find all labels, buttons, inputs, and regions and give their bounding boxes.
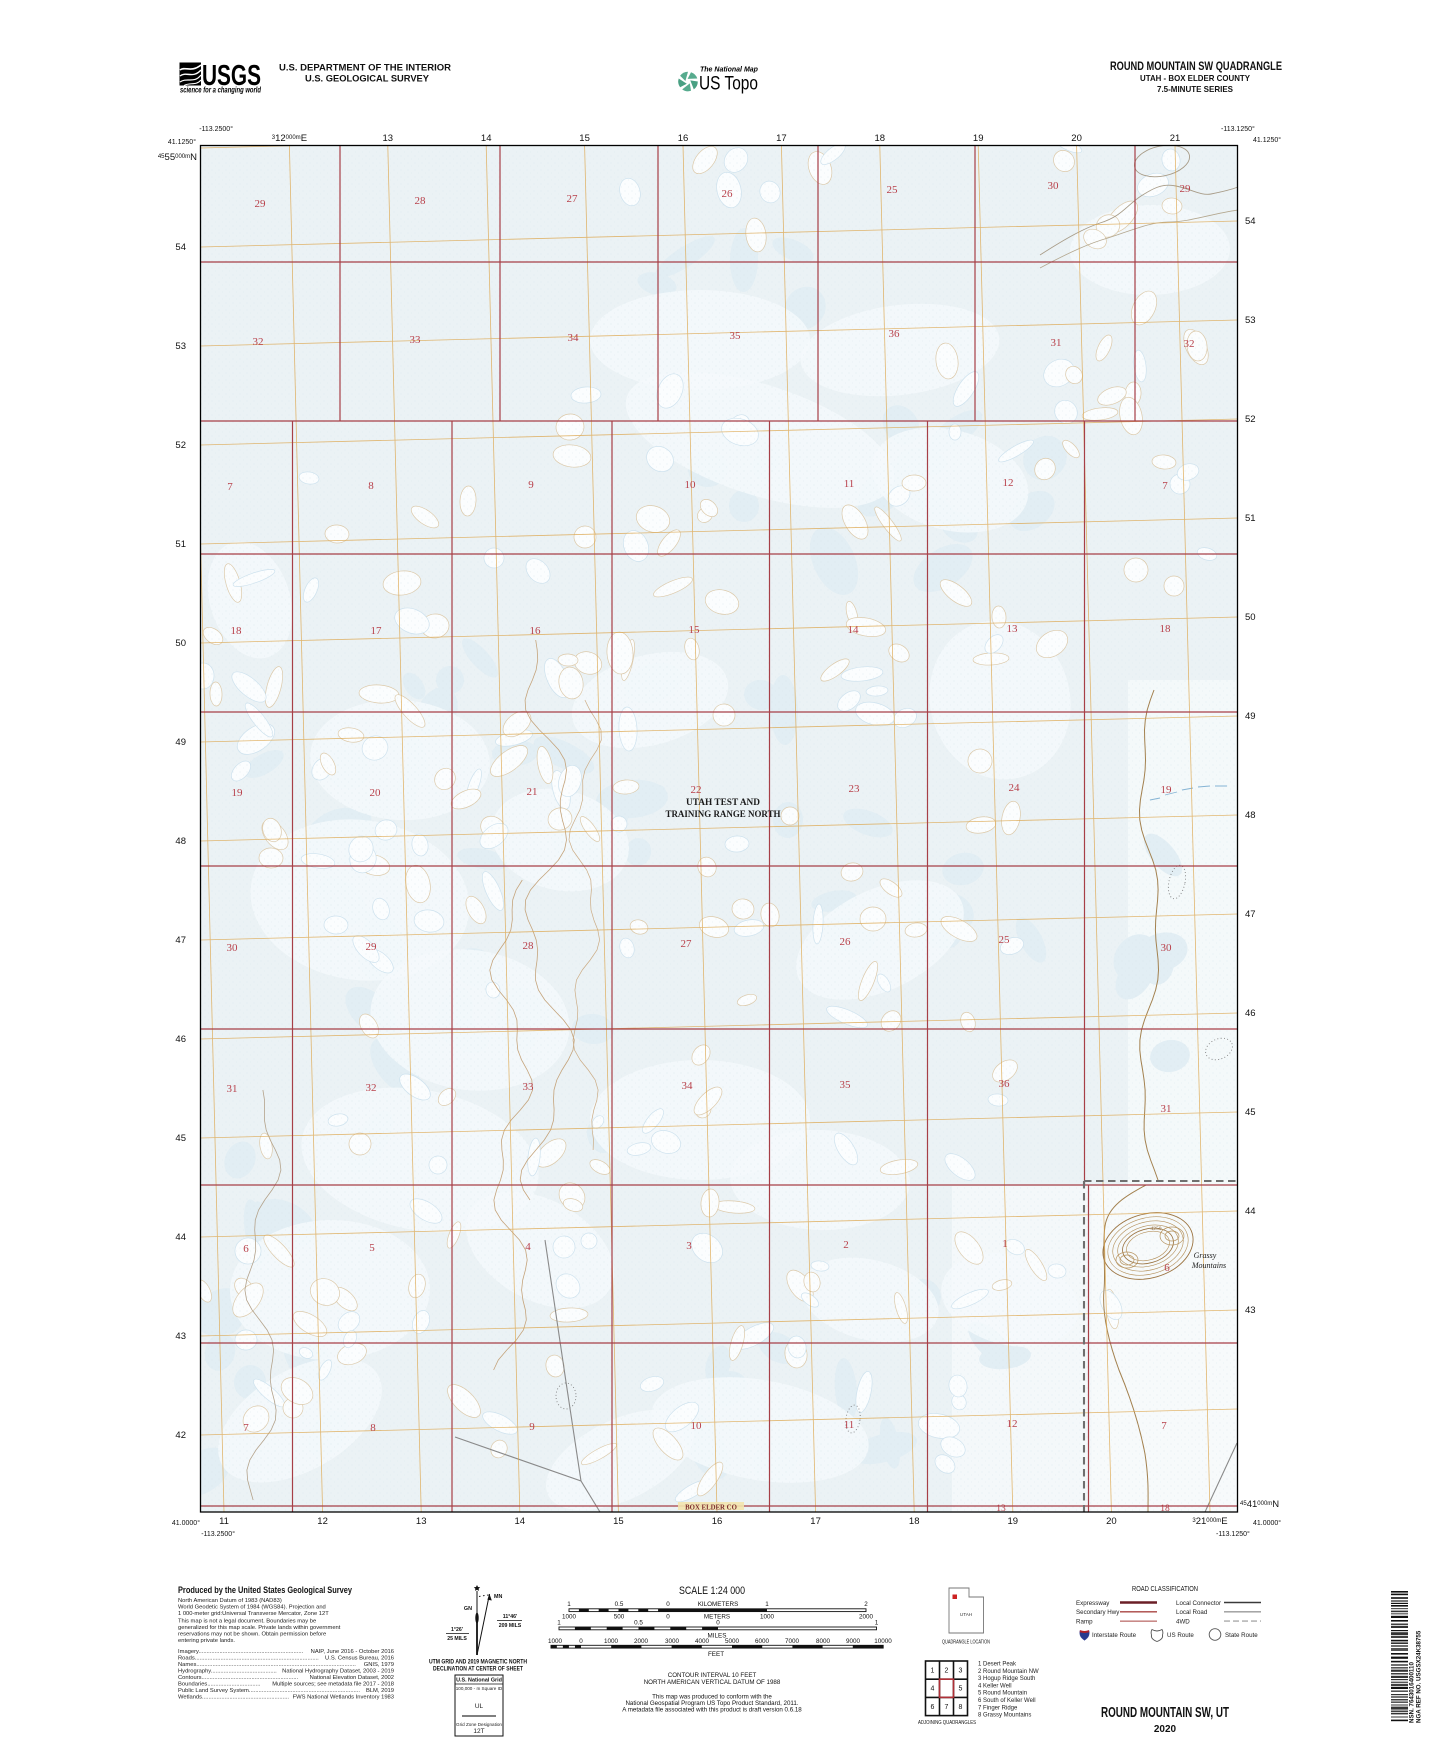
svg-text:24: 24 (1009, 782, 1021, 794)
svg-text:9: 9 (529, 1421, 535, 1433)
svg-text:25: 25 (999, 934, 1011, 946)
svg-text:1 Desert Peak: 1 Desert Peak (978, 1662, 1017, 1668)
svg-text:-113.1250°: -113.1250° (1216, 1530, 1250, 1538)
svg-text:31: 31 (1051, 337, 1062, 349)
svg-text:51: 51 (1245, 513, 1256, 524)
svg-text:5: 5 (959, 1686, 963, 1693)
svg-text:48: 48 (1245, 810, 1256, 821)
svg-text:4: 4 (525, 1241, 531, 1253)
svg-text:27: 27 (567, 193, 579, 205)
svg-text:34: 34 (568, 332, 580, 344)
svg-text:28: 28 (523, 940, 535, 952)
svg-text:44: 44 (1245, 1206, 1256, 1217)
svg-text:6: 6 (1164, 1262, 1170, 1274)
svg-text:UTAH TEST AND: UTAH TEST AND (686, 798, 760, 808)
svg-text:Boundaries....................: Boundaries..............................… (178, 1682, 261, 1688)
svg-text:Secondary Hwy: Secondary Hwy (1076, 1609, 1120, 1616)
svg-text:8 Grassy Mountains: 8 Grassy Mountains (978, 1713, 1031, 1719)
svg-text:1000: 1000 (760, 1614, 775, 1621)
svg-text:19: 19 (232, 787, 244, 799)
svg-text:3: 3 (959, 1668, 963, 1675)
svg-text:2: 2 (945, 1668, 949, 1675)
svg-text:U.S. GEOLOGICAL SURVEY: U.S. GEOLOGICAL SURVEY (305, 74, 430, 85)
svg-text:26: 26 (840, 936, 852, 948)
svg-text:29: 29 (255, 198, 267, 210)
svg-text:8: 8 (370, 1422, 376, 1434)
svg-text:41.1250°: 41.1250° (168, 138, 196, 146)
svg-text:13: 13 (416, 1516, 427, 1527)
svg-text:Multiple sources; see metadata: Multiple sources; see metadata file 2017… (272, 1682, 394, 1688)
svg-text:ROUND MOUNTAIN SW, UT: ROUND MOUNTAIN SW, UT (1101, 1705, 1229, 1721)
svg-text:53: 53 (175, 341, 186, 352)
svg-text:Contours......................: Contours................................… (178, 1675, 299, 1681)
svg-text:22: 22 (691, 784, 702, 796)
svg-text:UTM GRID AND 2019 MAGNETIC NOR: UTM GRID AND 2019 MAGNETIC NORTH (429, 1660, 527, 1666)
svg-text:7: 7 (227, 481, 233, 493)
svg-text:321000mE: 321000mE (1192, 1516, 1227, 1527)
svg-text:-113.2500°: -113.2500° (201, 1530, 235, 1538)
svg-text:entering private lands.: entering private lands. (178, 1638, 235, 1644)
svg-text:3: 3 (686, 1240, 692, 1252)
svg-text:46: 46 (175, 1034, 186, 1045)
svg-text:45: 45 (175, 1133, 186, 1144)
svg-text:14: 14 (481, 133, 492, 144)
svg-text:2020: 2020 (1154, 1724, 1177, 1735)
svg-text:30: 30 (227, 942, 239, 954)
svg-text:BLM, 2019: BLM, 2019 (366, 1688, 394, 1694)
svg-text:13: 13 (1007, 623, 1019, 635)
svg-text:43: 43 (175, 1331, 186, 1342)
svg-text:30: 30 (1048, 180, 1060, 192)
svg-text:U.S. National Grid: U.S. National Grid (456, 1678, 502, 1684)
svg-text:World Geodetic System of 1984: World Geodetic System of 1984 (WGS84). P… (178, 1605, 326, 1611)
svg-text:0: 0 (579, 1638, 583, 1645)
svg-text:ROAD CLASSIFICATION: ROAD CLASSIFICATION (1132, 1586, 1198, 1593)
svg-text:FEET: FEET (708, 1651, 724, 1658)
svg-text:science for a changing world: science for a changing world (180, 86, 261, 95)
svg-text:4 Keller Well: 4 Keller Well (978, 1683, 1012, 1689)
svg-text:209 MILS: 209 MILS (499, 1623, 522, 1629)
svg-text:1000: 1000 (604, 1638, 619, 1645)
svg-text:1 000-meter grid:Universal Tra: 1 000-meter grid:Universal Transverse Me… (178, 1611, 329, 1617)
svg-text:53: 53 (1245, 315, 1256, 326)
svg-text:4: 4 (931, 1686, 935, 1693)
svg-text:54: 54 (1245, 216, 1256, 227)
svg-text:35: 35 (840, 1079, 852, 1091)
svg-text:31: 31 (1161, 1103, 1172, 1115)
svg-text:36: 36 (999, 1078, 1011, 1090)
svg-text:5 Round Mountain: 5 Round Mountain (978, 1691, 1027, 1697)
svg-text:Wetlands......................: Wetlands................................… (178, 1695, 289, 1701)
svg-text:2: 2 (864, 1601, 868, 1608)
svg-text:0: 0 (716, 1619, 720, 1626)
svg-text:41.0000°: 41.0000° (1253, 1519, 1281, 1527)
svg-text:8: 8 (368, 480, 374, 492)
svg-text:Hydrography...................: Hydrography.............................… (178, 1669, 277, 1675)
svg-text:43: 43 (1245, 1305, 1256, 1316)
svg-text:14: 14 (848, 624, 860, 636)
svg-text:CONTOUR INTERVAL 10 FEET: CONTOUR INTERVAL 10 FEET (668, 1672, 757, 1679)
svg-text:Local Connector: Local Connector (1176, 1600, 1221, 1607)
svg-text:Names.........................: Names...................................… (178, 1662, 356, 1668)
svg-text:46: 46 (1245, 1008, 1256, 1019)
svg-text:16: 16 (530, 625, 542, 637)
svg-text:16: 16 (678, 133, 689, 144)
svg-text:26: 26 (722, 188, 734, 200)
svg-text:36: 36 (889, 328, 901, 340)
svg-text:7.5-MINUTE SERIES: 7.5-MINUTE SERIES (1157, 84, 1233, 94)
svg-text:19: 19 (1161, 784, 1173, 796)
svg-text:23: 23 (849, 783, 861, 795)
svg-text:A metadata file associated wit: A metadata file associated with this pro… (622, 1707, 802, 1714)
svg-text:ROUND MOUNTAIN SW QUADRANGLE: ROUND MOUNTAIN SW QUADRANGLE (1110, 59, 1282, 73)
svg-text:5: 5 (369, 1242, 375, 1254)
svg-text:DECLINATION AT CENTER OF SHEET: DECLINATION AT CENTER OF SHEET (433, 1667, 523, 1673)
svg-text:U.S. Census Bureau, 2016: U.S. Census Bureau, 2016 (325, 1656, 394, 1662)
svg-text:100,000 - m Square ID: 100,000 - m Square ID (456, 1686, 503, 1691)
svg-text:Produced by the United States: Produced by the United States Geological… (178, 1585, 353, 1595)
svg-text:State Route: State Route (1225, 1632, 1258, 1639)
svg-text:49: 49 (1245, 711, 1256, 722)
svg-text:2 Round Mountain NW: 2 Round Mountain NW (978, 1669, 1039, 1675)
svg-text:21: 21 (1170, 133, 1181, 144)
svg-text:QUADRANGLE LOCATION: QUADRANGLE LOCATION (942, 1640, 990, 1646)
svg-text:MILES: MILES (708, 1633, 727, 1640)
svg-text:20: 20 (370, 787, 382, 799)
svg-text:8000: 8000 (816, 1638, 831, 1645)
svg-text:32: 32 (1184, 338, 1195, 350)
svg-text:19: 19 (1008, 1516, 1019, 1527)
svg-text:UTAH: UTAH (960, 1612, 972, 1617)
svg-text:Ramp: Ramp (1076, 1618, 1093, 1625)
svg-text:4250: 4250 (1151, 1226, 1162, 1232)
svg-text:7 Finger Ridge: 7 Finger Ridge (978, 1705, 1018, 1711)
svg-text:33: 33 (523, 1081, 535, 1093)
svg-text:50: 50 (1245, 612, 1256, 623)
svg-text:UL: UL (475, 1703, 484, 1710)
svg-text:10000: 10000 (874, 1638, 892, 1645)
svg-text:41.1250°: 41.1250° (1253, 136, 1281, 144)
svg-text:UTAH - BOX ELDER COUNTY: UTAH - BOX ELDER COUNTY (1140, 73, 1250, 83)
svg-text:17: 17 (810, 1516, 821, 1527)
svg-text:44: 44 (175, 1232, 186, 1243)
svg-text:NGA REF NO. USGSX24K38755: NGA REF NO. USGSX24K38755 (1416, 1630, 1423, 1723)
svg-text:0: 0 (666, 1614, 670, 1621)
svg-text:32: 32 (253, 336, 264, 348)
svg-text:2000: 2000 (859, 1614, 874, 1621)
svg-text:7: 7 (1161, 1420, 1167, 1432)
svg-text:29: 29 (366, 941, 378, 953)
svg-text:34: 34 (682, 1080, 694, 1092)
svg-text:1: 1 (1002, 1238, 1008, 1250)
svg-text:1°26': 1°26' (451, 1627, 463, 1633)
svg-text:MN: MN (494, 1594, 502, 1600)
svg-text:BOX ELDER CO: BOX ELDER CO (685, 1505, 737, 1512)
svg-text:ADJOINING QUADRANGLES: ADJOINING QUADRANGLES (918, 1720, 977, 1726)
svg-text:500: 500 (614, 1614, 625, 1621)
svg-text:11°46': 11°46' (503, 1614, 518, 1620)
svg-text:National Hydrography Dataset,: National Hydrography Dataset, 2003 - 201… (282, 1669, 394, 1675)
svg-text:4WD: 4WD (1176, 1618, 1190, 1625)
svg-text:25: 25 (887, 184, 899, 196)
svg-text:14: 14 (515, 1516, 526, 1527)
svg-text:KILOMETERS: KILOMETERS (698, 1601, 739, 1608)
svg-text:Imagery.......................: Imagery.................................… (178, 1649, 304, 1655)
svg-text:12: 12 (317, 1516, 328, 1527)
svg-text:-113.1250°: -113.1250° (1221, 125, 1255, 133)
svg-text:FWS National Wetlands Inventor: FWS National Wetlands Inventory 1983 (293, 1695, 394, 1701)
svg-text:-113.2500°: -113.2500° (199, 125, 233, 133)
svg-text:5000: 5000 (725, 1638, 740, 1645)
svg-text:21: 21 (527, 786, 538, 798)
svg-text:47: 47 (1245, 909, 1256, 920)
svg-text:7000: 7000 (785, 1638, 800, 1645)
svg-text:6 South of Keller Well: 6 South of Keller Well (978, 1698, 1036, 1704)
svg-text:generalized for this map scale: generalized for this map scale. Private … (178, 1625, 341, 1631)
svg-text:GN: GN (464, 1606, 472, 1612)
svg-text:TRAINING RANGE NORTH: TRAINING RANGE NORTH (666, 810, 782, 820)
svg-text:12: 12 (1003, 477, 1014, 489)
svg-text:6: 6 (931, 1704, 935, 1711)
svg-text:9: 9 (528, 479, 534, 491)
svg-text:2000: 2000 (634, 1638, 649, 1645)
svg-text:2: 2 (843, 1239, 849, 1251)
svg-text:27: 27 (681, 938, 693, 950)
svg-text:1000: 1000 (548, 1638, 563, 1645)
svg-text:17: 17 (776, 133, 787, 144)
svg-text:20: 20 (1071, 133, 1082, 144)
svg-text:32: 32 (366, 1082, 377, 1094)
svg-text:19: 19 (973, 133, 984, 144)
svg-text:reservations may not be shown.: reservations may not be shown. Obtain pe… (178, 1632, 326, 1638)
svg-text:0: 0 (666, 1601, 670, 1608)
svg-text:48: 48 (175, 836, 186, 847)
svg-text:This map is not a legal docume: This map is not a legal document. Bounda… (178, 1619, 316, 1625)
svg-text:11: 11 (844, 1419, 855, 1431)
svg-text:49: 49 (175, 737, 186, 748)
svg-text:42: 42 (175, 1430, 186, 1441)
svg-text:12T: 12T (473, 1728, 484, 1735)
svg-text:1: 1 (875, 1619, 879, 1626)
svg-text:8: 8 (959, 1704, 963, 1711)
svg-text:US Topo: US Topo (699, 73, 758, 95)
svg-text:Roads.........................: Roads...................................… (178, 1656, 319, 1662)
svg-text:3000: 3000 (665, 1638, 680, 1645)
svg-text:0.5: 0.5 (634, 1619, 643, 1626)
svg-text:11: 11 (844, 478, 855, 490)
svg-text:Mountains: Mountains (1191, 1261, 1226, 1270)
svg-text:29: 29 (1180, 183, 1192, 195)
svg-text:35: 35 (730, 330, 742, 342)
svg-text:4541000mN: 4541000mN (1240, 1499, 1279, 1510)
svg-text:10: 10 (691, 1420, 703, 1432)
svg-text:7: 7 (1162, 480, 1168, 492)
svg-text:18: 18 (875, 133, 886, 144)
svg-text:6: 6 (243, 1243, 249, 1255)
svg-text:45: 45 (1245, 1107, 1256, 1118)
svg-text:18: 18 (1160, 623, 1172, 635)
svg-text:9000: 9000 (846, 1638, 861, 1645)
svg-text:25 MILS: 25 MILS (447, 1636, 467, 1642)
svg-text:13: 13 (383, 133, 394, 144)
svg-text:52: 52 (175, 440, 186, 451)
svg-text:7: 7 (945, 1704, 949, 1711)
svg-text:4555000mN: 4555000mN (158, 152, 197, 163)
svg-text:4000: 4000 (695, 1638, 710, 1645)
svg-text:NORTH AMERICAN VERTICAL DATUM: NORTH AMERICAN VERTICAL DATUM OF 1988 (644, 1679, 781, 1686)
svg-text:18: 18 (231, 625, 243, 637)
svg-text:28: 28 (415, 195, 427, 207)
svg-text:1: 1 (557, 1619, 561, 1626)
svg-text:Interstate Route: Interstate Route (1092, 1632, 1137, 1639)
svg-text:41.0000°: 41.0000° (172, 1519, 200, 1527)
svg-text:54: 54 (175, 242, 186, 253)
svg-text:31: 31 (227, 1083, 238, 1095)
svg-text:15: 15 (579, 133, 590, 144)
svg-text:16: 16 (712, 1516, 723, 1527)
svg-text:33: 33 (410, 334, 422, 346)
svg-text:US Route: US Route (1167, 1632, 1194, 1639)
svg-text:U.S. DEPARTMENT OF THE INTERIO: U.S. DEPARTMENT OF THE INTERIOR (279, 63, 451, 74)
svg-text:51: 51 (175, 539, 186, 550)
svg-text:30: 30 (1161, 942, 1173, 954)
svg-text:Grid Zone Designation: Grid Zone Designation (456, 1722, 502, 1727)
svg-text:1000: 1000 (562, 1614, 577, 1621)
svg-text:20: 20 (1106, 1516, 1117, 1527)
svg-text:312000mE: 312000mE (272, 133, 307, 144)
svg-text:12: 12 (1007, 1418, 1018, 1430)
svg-text:10: 10 (685, 479, 697, 491)
svg-text:1: 1 (765, 1601, 769, 1608)
svg-text:3 Hogup Ridge South: 3 Hogup Ridge South (978, 1676, 1035, 1682)
svg-text:GNIS, 1979: GNIS, 1979 (364, 1662, 394, 1668)
svg-text:7: 7 (243, 1422, 249, 1434)
svg-text:Grassy: Grassy (1194, 1251, 1217, 1260)
svg-text:0.5: 0.5 (615, 1601, 624, 1608)
svg-text:52: 52 (1245, 414, 1256, 425)
svg-text:SCALE 1:24 000: SCALE 1:24 000 (679, 1585, 745, 1597)
svg-text:North American Datum of 1983 (: North American Datum of 1983 (NAD83) (178, 1598, 282, 1604)
svg-text:National Elevation Dataset, 20: National Elevation Dataset, 2002 (310, 1675, 394, 1681)
svg-text:18: 18 (909, 1516, 920, 1527)
svg-text:Local Road: Local Road (1176, 1609, 1208, 1616)
svg-text:NAIP, June 2016 - October 2016: NAIP, June 2016 - October 2016 (311, 1649, 394, 1655)
svg-text:17: 17 (371, 625, 383, 637)
svg-text:15: 15 (613, 1516, 624, 1527)
svg-text:1: 1 (567, 1601, 571, 1608)
svg-text:47: 47 (175, 935, 186, 946)
svg-text:1: 1 (931, 1668, 935, 1675)
svg-text:Expressway: Expressway (1076, 1600, 1110, 1607)
svg-text:NSN. 7643016400110: NSN. 7643016400110 (1409, 1662, 1416, 1723)
svg-text:50: 50 (175, 638, 186, 649)
svg-text:15: 15 (689, 624, 701, 636)
svg-text:Public Land Survey System.....: Public Land Survey System...............… (178, 1688, 360, 1694)
svg-text:11: 11 (219, 1516, 229, 1527)
svg-text:6000: 6000 (755, 1638, 770, 1645)
